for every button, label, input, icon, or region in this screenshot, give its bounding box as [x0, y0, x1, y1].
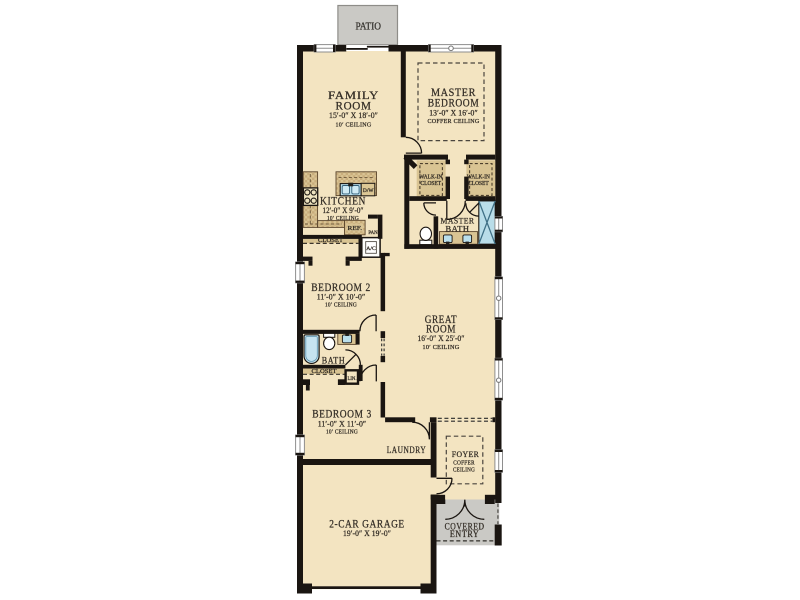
svg-text:PAN.: PAN.	[368, 230, 379, 236]
svg-text:BATH: BATH	[322, 357, 346, 367]
svg-text:CLOSET: CLOSET	[421, 181, 442, 187]
svg-text:COFFER CEILING: COFFER CEILING	[428, 118, 480, 125]
svg-text:CLOSET: CLOSET	[312, 369, 338, 375]
svg-text:ENTRY: ENTRY	[450, 530, 480, 540]
svg-text:COFFER: COFFER	[453, 459, 475, 466]
svg-text:A/C: A/C	[366, 246, 376, 252]
svg-text:10′ CEILING: 10′ CEILING	[423, 344, 460, 351]
svg-text:REF.: REF.	[348, 226, 363, 232]
svg-text:PATIO: PATIO	[355, 20, 381, 32]
svg-text:10′ CEILING: 10′ CEILING	[327, 215, 359, 222]
svg-text:CLOSET: CLOSET	[318, 238, 344, 244]
svg-text:CEILING: CEILING	[453, 467, 475, 474]
svg-text:10′ CEILING: 10′ CEILING	[325, 301, 357, 308]
svg-text:19′-0″ X 19′-0″: 19′-0″ X 19′-0″	[343, 528, 391, 538]
svg-text:10′ CEILING: 10′ CEILING	[326, 429, 358, 436]
svg-text:WALK-IN: WALK-IN	[467, 175, 491, 181]
svg-text:FOYER: FOYER	[452, 449, 480, 459]
svg-text:13′-0″ X 16′-0″: 13′-0″ X 16′-0″	[429, 108, 478, 118]
svg-text:BATH: BATH	[446, 223, 470, 233]
svg-text:11′-0″ X 11′-0″: 11′-0″ X 11′-0″	[318, 419, 367, 429]
svg-text:WALK-IN: WALK-IN	[419, 175, 443, 181]
svg-text:LAUNDRY: LAUNDRY	[387, 446, 427, 456]
svg-text:16′-0″ X 25′-0″: 16′-0″ X 25′-0″	[418, 333, 465, 343]
svg-text:11′-0″ X 10′-0″: 11′-0″ X 10′-0″	[317, 292, 366, 302]
svg-text:10′ CEILING: 10′ CEILING	[336, 122, 372, 129]
svg-text:LIN.: LIN.	[348, 376, 357, 382]
svg-text:15′-0″ X 18′-0″: 15′-0″ X 18′-0″	[329, 110, 378, 120]
svg-text:CLOSET: CLOSET	[468, 181, 489, 187]
svg-text:12′-0″ X 9′-0″: 12′-0″ X 9′-0″	[323, 205, 364, 215]
